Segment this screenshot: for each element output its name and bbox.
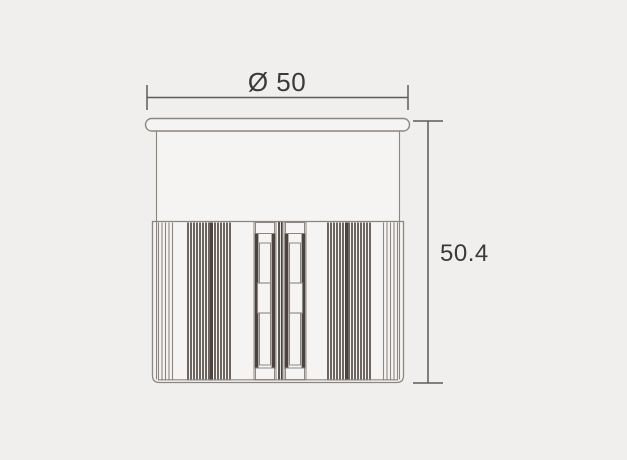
fixture-technical-drawing: Ø 50 50.4 — [0, 0, 627, 460]
height-dimension-annotation: 50.4 — [413, 121, 489, 383]
clip-channel-right-spring-clip — [290, 283, 303, 313]
fixture-trim-flange — [146, 119, 410, 132]
clip-channel-left-top-cap — [256, 223, 275, 234]
fixture-outline — [146, 119, 410, 383]
clip-channel-left-spring-clip — [258, 283, 271, 313]
diameter-dimension-annotation: Ø 50 — [147, 67, 408, 110]
heatsink-outer-contour — [153, 222, 404, 383]
technical-drawing-canvas: Ø 50 50.4 — [0, 0, 627, 460]
heatsink-fins-right-dense — [328, 223, 370, 381]
clip-channel-left-bottom-cap — [256, 368, 275, 380]
clip-channel-left-bar-inner — [272, 233, 276, 369]
fixture-upper-body — [157, 131, 400, 222]
clip-channel-right-bottom-cap — [286, 368, 305, 380]
clip-channel-right — [284, 222, 306, 380]
height-dimension-label: 50.4 — [440, 240, 489, 267]
diameter-dimension-label: Ø 50 — [248, 67, 306, 97]
clip-channel-right-bar-inner — [285, 233, 289, 369]
heatsink-fins-left-dense — [188, 223, 230, 381]
clip-channel-right-top-cap — [286, 223, 305, 234]
clip-channel-left — [254, 222, 276, 380]
